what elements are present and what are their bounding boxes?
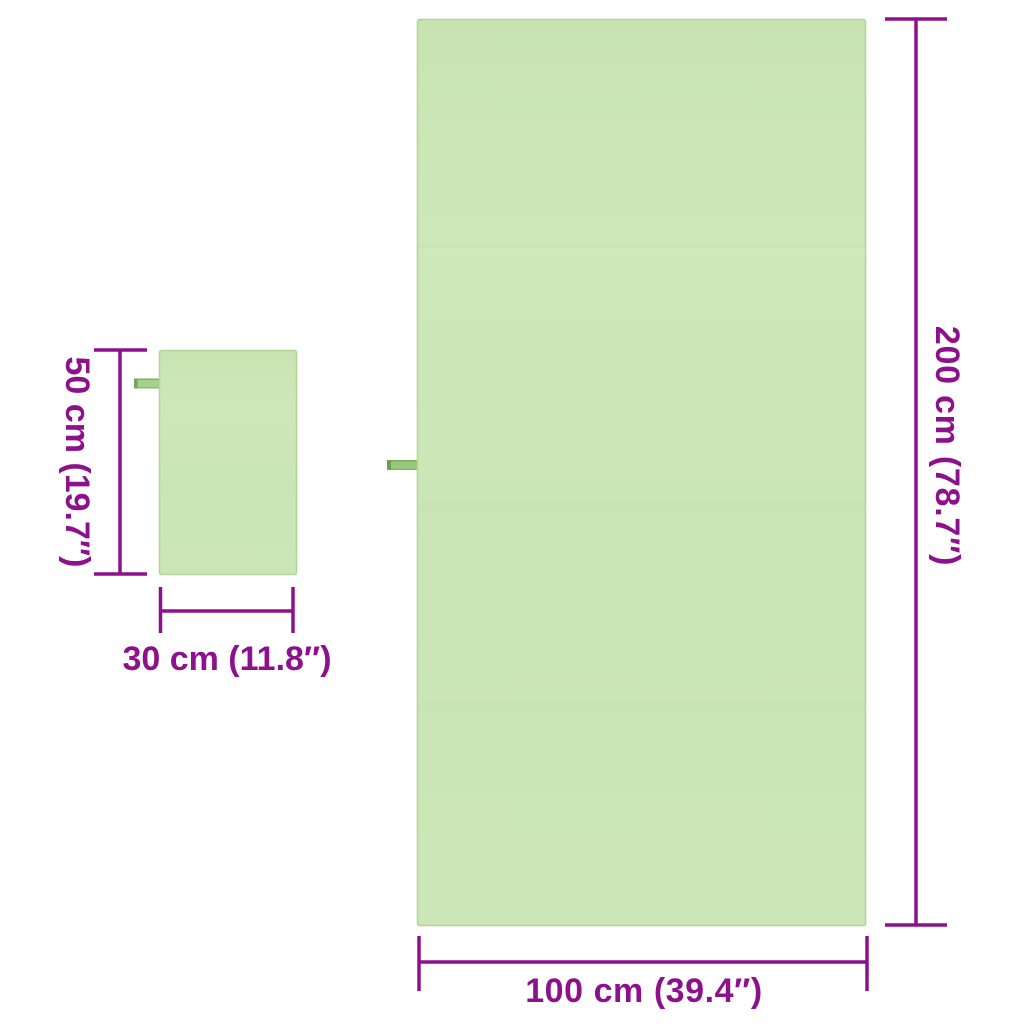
svg-text:50 cm (19.7″): 50 cm (19.7″)	[58, 357, 96, 568]
svg-text:200 cm (78.7″): 200 cm (78.7″)	[928, 326, 966, 566]
svg-text:100 cm (39.4″): 100 cm (39.4″)	[525, 972, 763, 1010]
svg-text:30 cm (11.8″): 30 cm (11.8″)	[122, 640, 331, 678]
